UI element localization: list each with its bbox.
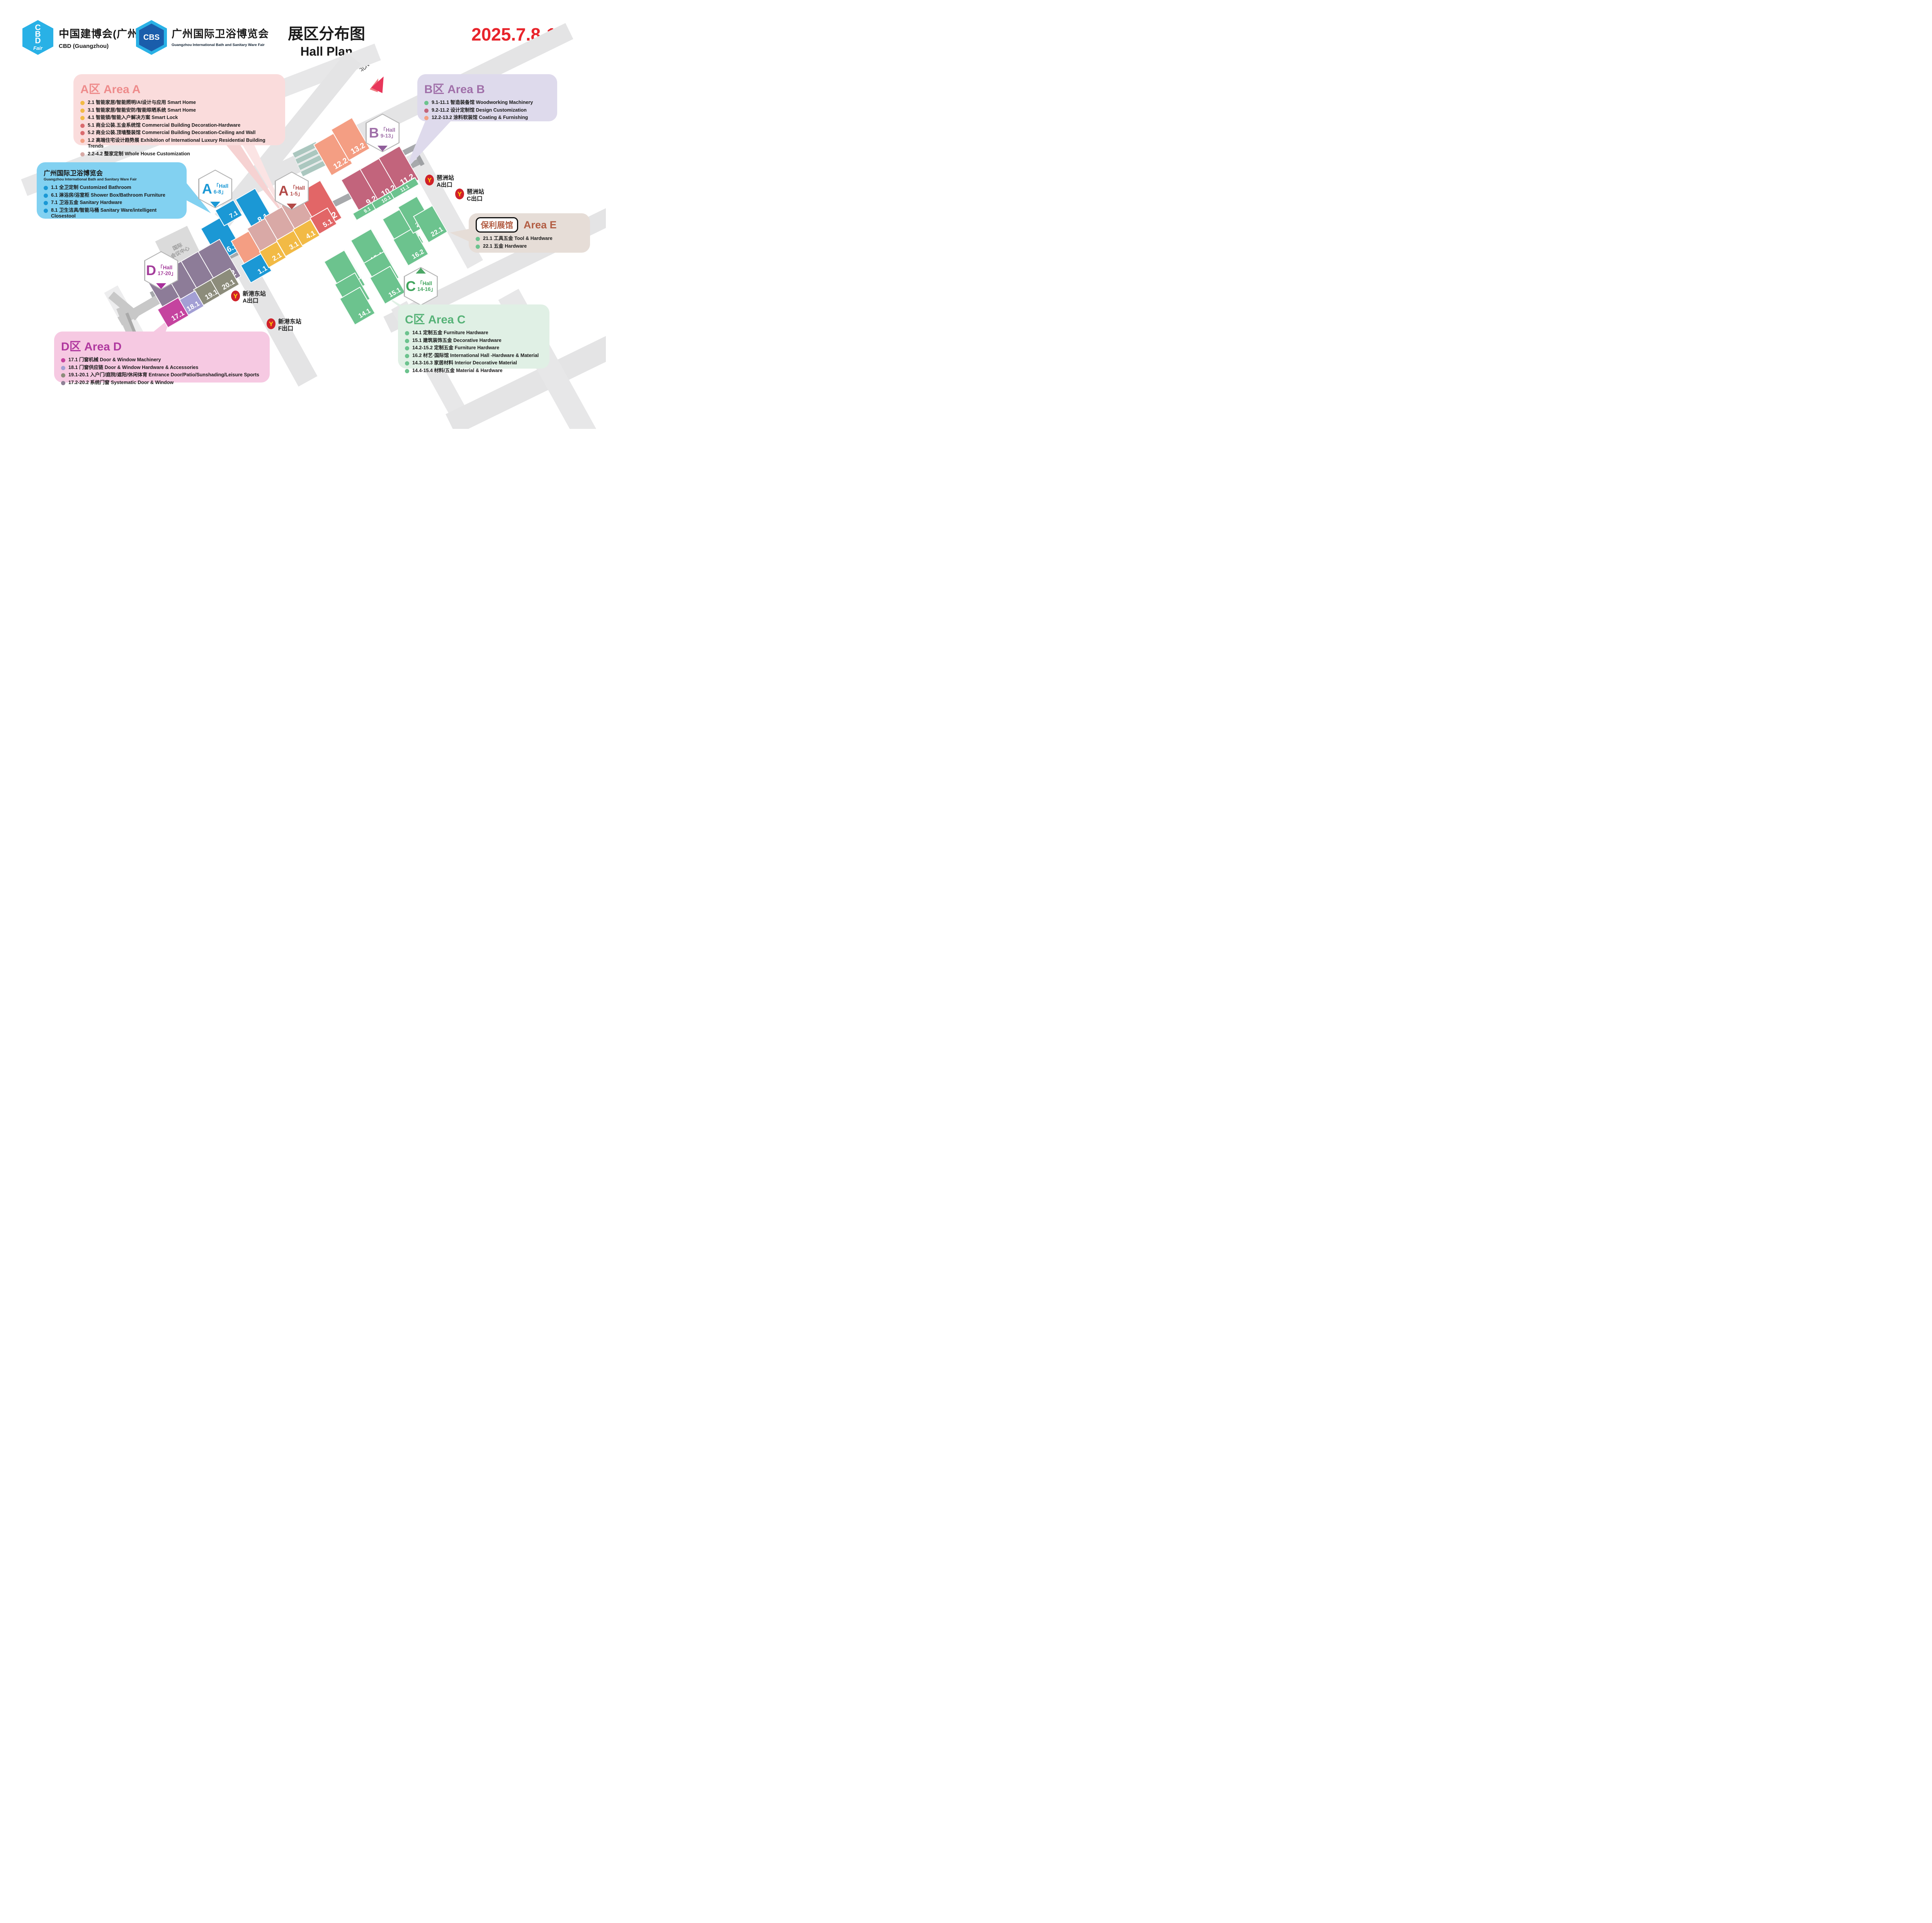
legend-dot-icon bbox=[61, 358, 65, 362]
legend-text: 14.3-16.3 家居材料 Interior Decorative Mater… bbox=[412, 360, 517, 366]
legend-item: 17.2-20.2 系统门窗 Systematic Door & Window bbox=[61, 380, 263, 386]
legend-dot-icon bbox=[405, 346, 409, 350]
legend-item: 5.2 商业公装.顶墙整装馆 Commercial Building Decor… bbox=[80, 130, 278, 136]
legend-item: 19.1-20.1 入户门/庭院/遮阳/休闲体育 Entrance Door/P… bbox=[61, 372, 263, 378]
legend-area-a-title: A区 Area A bbox=[80, 80, 278, 97]
legend-text: 1.2 高端住宅设计趋势展 Exhibition of Internationa… bbox=[88, 138, 278, 150]
legend-area-c-items: 14.1 定制五金 Furniture Hardware15.1 建筑装饰五金 … bbox=[405, 330, 543, 374]
metro-station-F出口: Y 新港东站F出口 bbox=[267, 318, 301, 332]
legend-item: 12.2-13.2 涂料软装馆 Coating & Furnishing bbox=[424, 115, 550, 121]
legend-text: 5.1 商业公装.五金系统馆 Commercial Building Decor… bbox=[88, 122, 240, 129]
legend-dot-icon bbox=[424, 116, 429, 120]
callout-tail bbox=[405, 120, 452, 171]
legend-area-e-items: 21.1 工具五金 Tool & Hardware22.1 五金 Hardwar… bbox=[476, 236, 583, 249]
legend-area-b: B区 Area B 9.1-11.1 智造装备馆 Woodworking Mac… bbox=[417, 74, 557, 121]
legend-area-d: D区 Area D 17.1 门窗机械 Door & Window Machin… bbox=[54, 332, 270, 383]
metro-logo-icon: Y bbox=[425, 175, 434, 185]
metro-logo-icon: Y bbox=[455, 189, 464, 199]
hall-label: 9.1 bbox=[362, 206, 371, 214]
legend-item: 6.1 淋浴房/浴室柜 Shower Box/Bathroom Furnitur… bbox=[44, 192, 180, 199]
legend-dot-icon bbox=[405, 339, 409, 343]
legend-text: 9.1-11.1 智造装备馆 Woodworking Machinery bbox=[432, 100, 533, 106]
legend-dot-icon bbox=[80, 124, 85, 128]
badge-hall-range: 「Hall14-16」 bbox=[417, 281, 436, 292]
metro-logo-icon: Y bbox=[231, 291, 240, 301]
legend-area-a-items: 2.1 智能家居/智能照明/AI设计与应用 Smart Home3.1 智能家居… bbox=[80, 100, 278, 157]
legend-text: 7.1 卫浴五金 Sanitary Hardware bbox=[51, 200, 122, 206]
badge-letter: D bbox=[146, 262, 156, 279]
legend-text: 14.1 定制五金 Furniture Hardware bbox=[412, 330, 488, 336]
legend-text: 14.4-15.4 材料/五金 Material & Hardware bbox=[412, 368, 502, 374]
legend-dot-icon bbox=[80, 101, 85, 105]
legend-dot-icon bbox=[44, 209, 48, 213]
legend-text: 2.2-4.2 整家定制 Whole House Customization bbox=[88, 151, 190, 157]
metro-station-A出口: Y 琶洲站A出口 bbox=[425, 175, 454, 189]
legend-dot-icon bbox=[80, 152, 85, 156]
metro-station-A出口: Y 新港东站A出口 bbox=[231, 291, 266, 304]
legend-text: 6.1 淋浴房/浴室柜 Shower Box/Bathroom Furnitur… bbox=[51, 192, 165, 199]
legend-text: 1.1 全卫定制 Customized Bathroom bbox=[51, 185, 131, 191]
legend-text: 17.2-20.2 系统门窗 Systematic Door & Window bbox=[68, 380, 173, 386]
legend-dot-icon bbox=[476, 237, 480, 241]
legend-dot-icon bbox=[80, 109, 85, 113]
badge-letter: C bbox=[406, 278, 416, 294]
legend-item: 2.2-4.2 整家定制 Whole House Customization bbox=[80, 151, 278, 157]
legend-item: 16.2 材艺·国际馆 International Hall -Hardware… bbox=[405, 353, 543, 359]
badge-letter: B bbox=[369, 125, 379, 141]
legend-dot-icon bbox=[405, 331, 409, 335]
legend-area-b-title: B区 Area B bbox=[424, 80, 550, 97]
legend-dot-icon bbox=[405, 354, 409, 358]
legend-text: 14.2-15.2 定制五金 Furniture Hardware bbox=[412, 345, 499, 351]
legend-item: 1.1 全卫定制 Customized Bathroom bbox=[44, 185, 180, 191]
station-label: 琶洲站C出口 bbox=[467, 189, 484, 202]
legend-item: 18.1 门窗供应链 Door & Window Hardware & Acce… bbox=[61, 365, 263, 371]
legend-text: 5.2 商业公装.顶墙整装馆 Commercial Building Decor… bbox=[88, 130, 255, 136]
legend-item: 14.3-16.3 家居材料 Interior Decorative Mater… bbox=[405, 360, 543, 366]
legend-dot-icon bbox=[61, 373, 65, 377]
legend-dot-icon bbox=[44, 186, 48, 190]
legend-bath-title: 广州国际卫浴博览会 bbox=[44, 168, 180, 177]
legend-item: 3.1 智能家居/智能安防/智能晾晒系统 Smart Home bbox=[80, 107, 278, 114]
legend-item: 4.1 智能锁/智能入户解决方案 Smart Lock bbox=[80, 115, 278, 121]
legend-text: 2.1 智能家居/智能照明/AI设计与应用 Smart Home bbox=[88, 100, 196, 106]
legend-area-d-title: D区 Area D bbox=[61, 337, 263, 354]
legend-area-c-title: C区 Area C bbox=[405, 310, 543, 327]
legend-text: 9.2-11.2 设计定制馆 Design Customization bbox=[432, 107, 527, 114]
legend-item: 2.1 智能家居/智能照明/AI设计与应用 Smart Home bbox=[80, 100, 278, 106]
legend-item: 14.2-15.2 定制五金 Furniture Hardware bbox=[405, 345, 543, 351]
legend-dot-icon bbox=[424, 109, 429, 113]
legend-dot-icon bbox=[424, 101, 429, 105]
legend-text: 15.1 建筑装饰五金 Decorative Hardware bbox=[412, 338, 502, 344]
legend-text: 22.1 五金 Hardware bbox=[483, 243, 527, 250]
legend-area-e: 保利展馆 Area E 21.1 工具五金 Tool & Hardware22.… bbox=[469, 213, 590, 253]
legend-text: 18.1 门窗供应链 Door & Window Hardware & Acce… bbox=[68, 365, 198, 371]
legend-dot-icon bbox=[61, 381, 65, 385]
legend-text: 21.1 工具五金 Tool & Hardware bbox=[483, 236, 553, 242]
legend-item: 8.1 卫生洁具/智能马桶 Sanitary Ware/intelligent … bbox=[44, 207, 180, 219]
legend-area-a: A区 Area A 2.1 智能家居/智能照明/AI设计与应用 Smart Ho… bbox=[73, 74, 285, 145]
legend-area-c: C区 Area C 14.1 定制五金 Furniture Hardware15… bbox=[398, 304, 549, 369]
legend-area-e-header: 保利展馆 Area E bbox=[476, 217, 583, 233]
legend-text: 17.1 门窗机械 Door & Window Machinery bbox=[68, 357, 161, 363]
station-label: 新港东站F出口 bbox=[278, 318, 301, 332]
legend-item: 14.1 定制五金 Furniture Hardware bbox=[405, 330, 543, 336]
station-label: 琶洲站A出口 bbox=[437, 175, 454, 189]
legend-item: 9.2-11.2 设计定制馆 Design Customization bbox=[424, 107, 550, 114]
legend-dot-icon bbox=[44, 201, 48, 205]
hall-plan-poster: C B D Fair 中国建博会(广州) CBD (Guangzhou) CBS… bbox=[0, 0, 606, 429]
legend-text: 12.2-13.2 涂料软装馆 Coating & Furnishing bbox=[432, 115, 528, 121]
legend-item: 22.1 五金 Hardware bbox=[476, 243, 583, 250]
legend-bath-items: 1.1 全卫定制 Customized Bathroom6.1 淋浴房/浴室柜 … bbox=[44, 185, 180, 219]
legend-text: 4.1 智能锁/智能入户解决方案 Smart Lock bbox=[88, 115, 178, 121]
legend-area-d-items: 17.1 门窗机械 Door & Window Machinery18.1 门窗… bbox=[61, 357, 263, 386]
legend-area-b-items: 9.1-11.1 智造装备馆 Woodworking Machinery9.2-… bbox=[424, 100, 550, 121]
legend-text: 16.2 材艺·国际馆 International Hall -Hardware… bbox=[412, 353, 539, 359]
legend-item: 14.4-15.4 材料/五金 Material & Hardware bbox=[405, 368, 543, 374]
legend-text: 8.1 卫生洁具/智能马桶 Sanitary Ware/intelligent … bbox=[51, 207, 180, 219]
legend-bath-fair: 广州国际卫浴博览会 Guangzhou International Bath a… bbox=[37, 162, 187, 219]
legend-item: 7.1 卫浴五金 Sanitary Hardware bbox=[44, 200, 180, 206]
legend-item: 1.2 高端住宅设计趋势展 Exhibition of Internationa… bbox=[80, 138, 278, 150]
legend-area-e-title: Area E bbox=[524, 219, 557, 231]
legend-dot-icon bbox=[61, 366, 65, 370]
poly-pavilion-label: 保利展馆 bbox=[476, 217, 518, 233]
legend-item: 15.1 建筑装饰五金 Decorative Hardware bbox=[405, 338, 543, 344]
metro-logo-icon: Y bbox=[267, 318, 276, 329]
legend-item: 21.1 工具五金 Tool & Hardware bbox=[476, 236, 583, 242]
legend-bath-subtitle: Guangzhou International Bath and Sanitar… bbox=[44, 177, 180, 182]
legend-dot-icon bbox=[80, 139, 85, 143]
legend-dot-icon bbox=[80, 116, 85, 120]
legend-item: 5.1 商业公装.五金系统馆 Commercial Building Decor… bbox=[80, 122, 278, 129]
badge-hall-range: 「Hall9-13」 bbox=[381, 127, 396, 139]
badge-hall-range: 「Hall17-20」 bbox=[158, 265, 176, 276]
station-label: 新港东站A出口 bbox=[243, 291, 266, 304]
badge-letter: A bbox=[279, 183, 289, 199]
badge-hall-range: 「Hall6-8」 bbox=[214, 183, 228, 195]
legend-dot-icon bbox=[476, 245, 480, 249]
legend-dot-icon bbox=[405, 369, 409, 373]
legend-dot-icon bbox=[44, 194, 48, 198]
legend-text: 3.1 智能家居/智能安防/智能晾晒系统 Smart Home bbox=[88, 107, 196, 114]
legend-item: 17.1 门窗机械 Door & Window Machinery bbox=[61, 357, 263, 363]
legend-dot-icon bbox=[405, 361, 409, 366]
badge-letter: A bbox=[202, 181, 212, 197]
legend-item: 9.1-11.1 智造装备馆 Woodworking Machinery bbox=[424, 100, 550, 106]
legend-dot-icon bbox=[80, 131, 85, 135]
callout-tail bbox=[450, 229, 470, 242]
metro-station-C出口: Y 琶洲站C出口 bbox=[455, 189, 484, 202]
badge-hall-range: 「Hall1-5」 bbox=[290, 185, 305, 197]
legend-text: 19.1-20.1 入户门/庭院/遮阳/休闲体育 Entrance Door/P… bbox=[68, 372, 259, 378]
